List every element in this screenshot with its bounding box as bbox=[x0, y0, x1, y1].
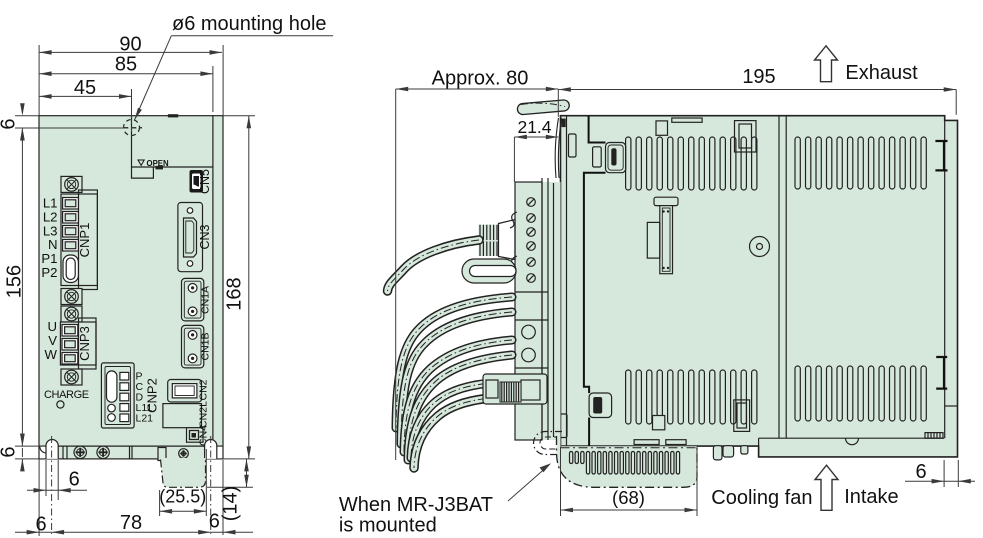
svg-text:CN5: CN5 bbox=[198, 169, 212, 194]
svg-text:CN3: CN3 bbox=[198, 224, 212, 249]
svg-text:45: 45 bbox=[74, 77, 96, 99]
svg-text:6: 6 bbox=[69, 468, 80, 490]
svg-text:78: 78 bbox=[120, 512, 142, 534]
svg-text:Approx. 80: Approx. 80 bbox=[432, 68, 529, 90]
svg-text:(68): (68) bbox=[612, 487, 645, 508]
svg-text:6: 6 bbox=[0, 118, 20, 129]
svg-text:When MR-J3BAT: When MR-J3BAT bbox=[339, 494, 493, 516]
svg-text:168: 168 bbox=[224, 277, 246, 310]
svg-text:195: 195 bbox=[742, 66, 775, 88]
svg-text:N: N bbox=[48, 237, 58, 252]
svg-text:CN2: CN2 bbox=[198, 379, 210, 400]
svg-text:P1: P1 bbox=[41, 251, 57, 266]
svg-text:P2: P2 bbox=[41, 265, 57, 280]
svg-text:W: W bbox=[45, 347, 58, 362]
svg-text:ø6 mounting hole: ø6 mounting hole bbox=[172, 13, 327, 35]
svg-text:CNP2: CNP2 bbox=[145, 378, 160, 413]
svg-text:6: 6 bbox=[35, 514, 46, 536]
svg-text:CNP1: CNP1 bbox=[77, 223, 92, 258]
svg-text:V: V bbox=[48, 333, 57, 348]
svg-text:85: 85 bbox=[115, 54, 137, 76]
svg-text:6: 6 bbox=[209, 510, 220, 532]
svg-text:L21: L21 bbox=[136, 413, 154, 425]
svg-text:CN1A: CN1A bbox=[200, 286, 212, 314]
svg-text:(14): (14) bbox=[220, 486, 242, 522]
svg-text:21.4: 21.4 bbox=[517, 117, 551, 137]
svg-text:CNP3: CNP3 bbox=[77, 326, 92, 361]
svg-text:CN1B: CN1B bbox=[200, 332, 212, 360]
svg-text:L1: L1 bbox=[43, 196, 58, 211]
svg-text:U: U bbox=[47, 319, 57, 334]
svg-text:156: 156 bbox=[4, 265, 26, 298]
svg-text:Cooling fan: Cooling fan bbox=[711, 487, 812, 509]
svg-text:CHARGE: CHARGE bbox=[44, 389, 89, 401]
svg-text:is mounted: is mounted bbox=[339, 515, 437, 537]
svg-text:CN2L: CN2L bbox=[198, 401, 210, 428]
svg-text:OPEN: OPEN bbox=[147, 159, 169, 168]
svg-text:6: 6 bbox=[915, 461, 926, 483]
svg-text:6: 6 bbox=[0, 446, 20, 457]
svg-text:(25.5): (25.5) bbox=[159, 487, 206, 507]
svg-text:Exhaust: Exhaust bbox=[845, 62, 918, 84]
svg-text:90: 90 bbox=[119, 33, 141, 55]
svg-text:Intake: Intake bbox=[844, 486, 898, 508]
svg-text:L2: L2 bbox=[43, 210, 58, 225]
